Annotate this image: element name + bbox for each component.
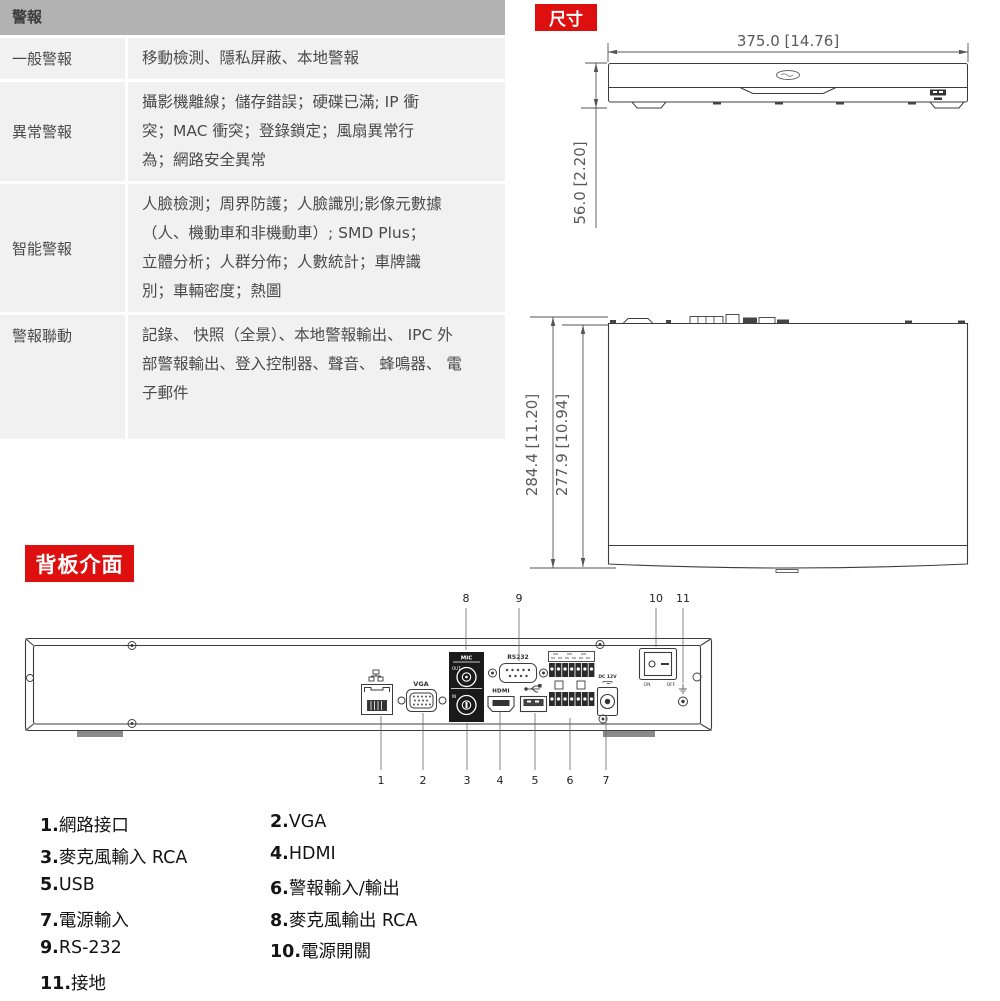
table-row-abnormal-alarm: 異常警報 攝影機離線；儲存錯誤；硬碟已滿; IP 衝 突；MAC 衝突；登錄鎖定… (0, 82, 505, 181)
arrowhead (581, 325, 585, 334)
legend-item-3: 3.麥克風輸入 RCA (40, 844, 270, 876)
legend-item-10: 10.電源開關 (270, 938, 515, 970)
row-value: 移動檢測、隱私屏蔽、本地警報 (128, 38, 505, 79)
back-panel-badge: 背板介面 (25, 545, 134, 582)
vga-label: VGA (413, 680, 428, 688)
rs232-label: RS232 (507, 654, 528, 661)
front-view-drawing: 375.0 [14.76] 56.0 [2.20] (575, 33, 995, 243)
switch-off-label: OFF (667, 682, 676, 688)
callout-4: 4 (497, 774, 504, 787)
legend-item-4: 4.HDMI (270, 844, 515, 876)
arrowhead (551, 559, 555, 568)
width-dim-label: 375.0 [14.76] (737, 32, 839, 50)
dimensions-badge: 尺寸 (535, 4, 597, 31)
row-value: 攝影機離線；儲存錯誤；硬碟已滿; IP 衝 突；MAC 衝突；登錄鎖定；風扇異常… (128, 82, 505, 181)
row-value: 記錄、 快照（全景）、本地警報輸出、 IPC 外 部警報輸出、登入控制器、聲音、… (128, 315, 505, 439)
usb-icon (525, 685, 541, 693)
callout-7: 7 (603, 774, 610, 787)
chassis-foot (77, 731, 123, 737)
arrowhead (551, 317, 555, 326)
rs232-port (489, 664, 548, 683)
table-row-alarm-linkage: 警報聯動 記錄、 快照（全景）、本地警報輸出、 IPC 外 部警報輸出、登入控制… (0, 315, 505, 439)
row-label: 智能警報 (0, 184, 125, 312)
inner-depth-label: 277.9 [10.94] (553, 394, 571, 496)
callout-11: 11 (676, 592, 690, 605)
legend-item-1: 1.網路接口 (40, 812, 270, 844)
dc-label: DC 12V (598, 674, 617, 680)
height-dim-label: 56.0 [2.20] (571, 141, 589, 224)
vga-port (398, 690, 446, 712)
row-label: 一般警報 (0, 38, 125, 79)
mic-rca-block: MIC OUT IN (449, 652, 484, 722)
legend-item-6: 6.警報輸入/輸出 (270, 875, 515, 907)
alarm-table-header: 警報 (0, 0, 505, 35)
dc-power-jack (598, 688, 618, 716)
legend-item-5: 5.USB (40, 875, 270, 907)
rear-connector-bumps (610, 315, 965, 324)
ground-screw (679, 697, 688, 706)
device-top-outline (609, 324, 968, 573)
top-view-drawing: 284.4 [11.20] 277.9 [10.94] (520, 303, 998, 588)
outer-depth-label: 284.4 [11.20] (523, 394, 541, 496)
callout-10: 10 (649, 592, 663, 605)
mic-in-label: IN (452, 694, 456, 699)
callout-6: 6 (567, 774, 574, 787)
callout-5: 5 (532, 774, 539, 787)
arrowhead (594, 63, 598, 72)
callout-8: 8 (463, 592, 470, 605)
network-icon (369, 670, 383, 681)
callout-3: 3 (464, 774, 471, 787)
depth-dimensions (530, 317, 616, 568)
legend-item-2: 2.VGA (270, 812, 515, 844)
alarm-spec-table: 警報 一般警報 移動檢測、隱私屏蔽、本地警報 異常警報 攝影機離線；儲存錯誤；硬… (0, 0, 505, 442)
dc-polarity-icon (603, 682, 612, 684)
usb-port (521, 697, 547, 712)
mic-label: MIC (461, 656, 473, 662)
arrowhead (959, 50, 968, 54)
back-panel-drawing: VGA MIC OUT IN RS232 (10, 588, 740, 800)
power-switch (640, 649, 677, 680)
legend-item-11: 11.接地 (40, 970, 270, 1001)
arrowhead (594, 99, 598, 108)
legend-item-9: 9.RS-232 (40, 938, 270, 970)
legend-item-7: 7.電源輸入 (40, 907, 270, 939)
arrowhead (581, 558, 585, 567)
row-label: 警報聯動 (0, 315, 125, 439)
hdmi-label: HDMI (492, 689, 510, 695)
row-label: 異常警報 (0, 82, 125, 181)
ethernet-port (362, 685, 393, 715)
hdmi-port (488, 697, 514, 712)
ground-icon (679, 684, 687, 693)
port-legend: 1.網路接口 2.VGA 3.麥克風輸入 RCA 4.HDMI 5.USB 6.… (40, 812, 515, 1001)
arrowhead (608, 50, 617, 54)
callout-2: 2 (420, 774, 427, 787)
callout-1: 1 (378, 774, 385, 787)
table-row-smart-alarm: 智能警報 人臉檢測；周界防護；人臉識別;影像元數據 （人、機動車和非機動車）; … (0, 184, 505, 312)
chassis-foot (603, 731, 655, 737)
callout-9: 9 (516, 592, 523, 605)
switch-on-label: ON (644, 682, 651, 688)
alarm-terminal-block (549, 652, 595, 707)
table-row-general-alarm: 一般警報 移動檢測、隱私屏蔽、本地警報 (0, 38, 505, 79)
row-value: 人臉檢測；周界防護；人臉識別;影像元數據 （人、機動車和非機動車）; SMD P… (128, 184, 505, 312)
legend-item-8: 8.麥克風輸出 RCA (270, 907, 515, 939)
